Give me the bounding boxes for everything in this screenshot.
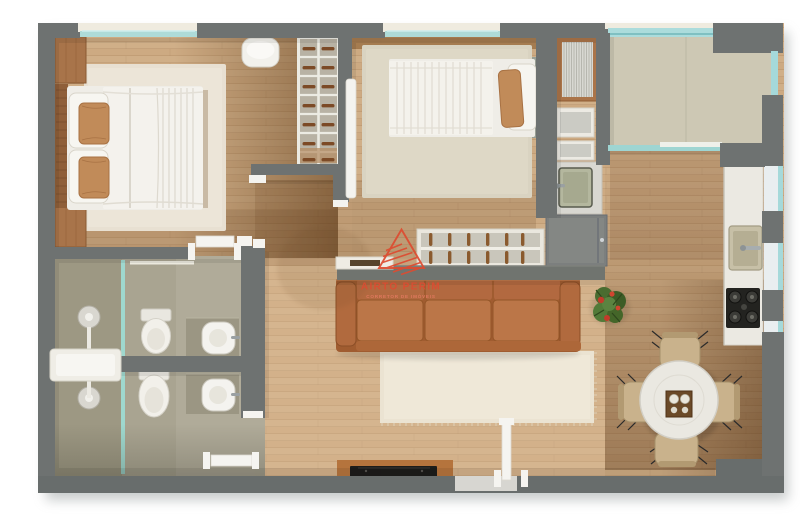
svg-text:CORRETOR DE IMÓVEIS: CORRETOR DE IMÓVEIS [366, 292, 435, 299]
svg-text:AIRTO PERIM: AIRTO PERIM [361, 282, 441, 293]
